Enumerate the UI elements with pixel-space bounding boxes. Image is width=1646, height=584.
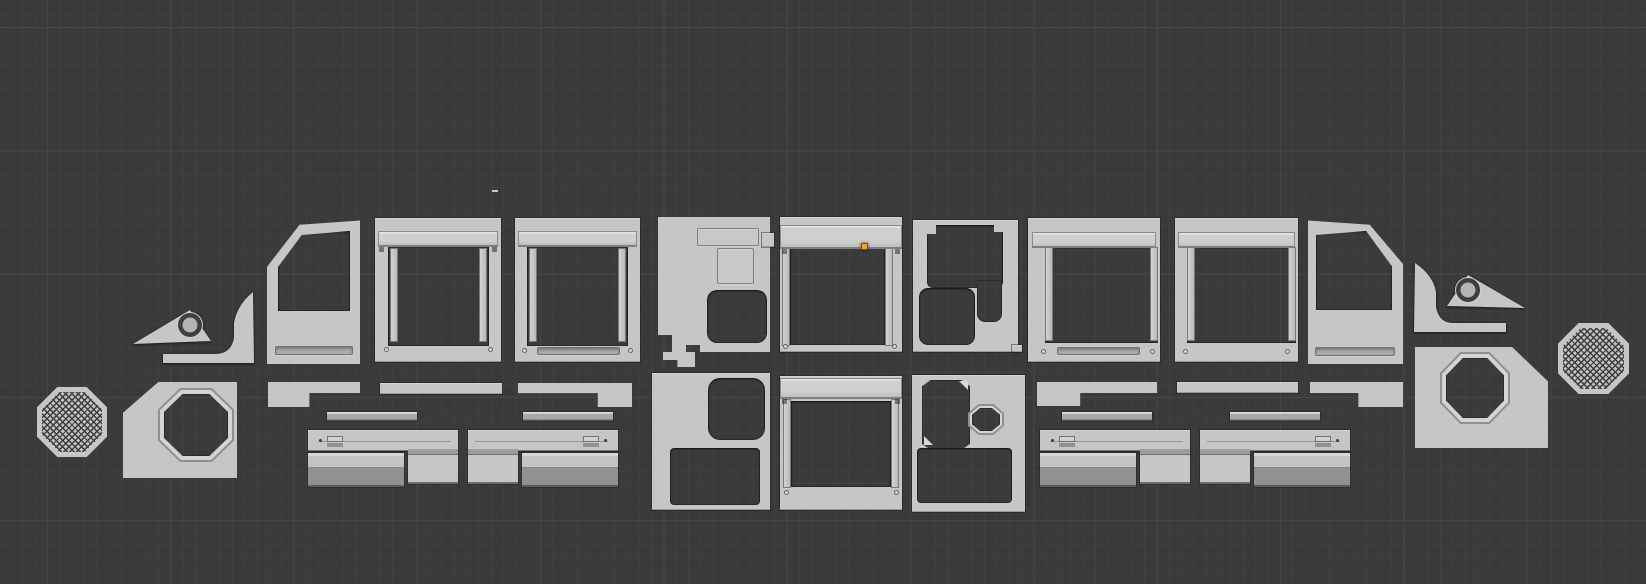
assembly-light-block bbox=[1200, 455, 1250, 484]
window-rail-right bbox=[618, 248, 626, 342]
rocker-strip-right-c[interactable] bbox=[1310, 382, 1403, 407]
latch-detail-upper bbox=[1315, 436, 1331, 442]
bottom-panel-left[interactable] bbox=[652, 373, 770, 510]
rounded-cutout bbox=[708, 378, 765, 440]
window-header-bar bbox=[378, 231, 498, 247]
assembly-dark-block bbox=[1254, 468, 1350, 487]
rocker-strip-right-b[interactable] bbox=[1177, 382, 1298, 393]
latch-detail-lower bbox=[1315, 443, 1331, 447]
window-rail-left bbox=[782, 245, 790, 346]
octagon-hole bbox=[164, 394, 228, 456]
latch-detail-lower bbox=[583, 443, 599, 447]
rail-strip-right-1[interactable] bbox=[1062, 412, 1152, 421]
rect-cutout bbox=[917, 448, 1012, 503]
header-hook-left bbox=[782, 249, 787, 254]
assembly-top-band bbox=[308, 430, 458, 451]
octagon-hole bbox=[1446, 358, 1504, 418]
assembly-pin-dot bbox=[1336, 439, 1339, 442]
assembly-step-band bbox=[1040, 453, 1136, 469]
assembly-step-band bbox=[522, 453, 618, 469]
tall-cutout bbox=[922, 380, 970, 450]
window-rail-right bbox=[1288, 247, 1296, 341]
door-handle-slot bbox=[1315, 347, 1395, 356]
screw-dot bbox=[1041, 349, 1046, 354]
assembly-pin-dot bbox=[1051, 439, 1054, 442]
assembly-step-band bbox=[308, 453, 404, 469]
window-rail-left bbox=[1187, 247, 1195, 341]
window-opening bbox=[388, 246, 489, 346]
screw-dot bbox=[1150, 349, 1155, 354]
assembly-top-band bbox=[1040, 430, 1190, 451]
rocker-strip-left-b[interactable] bbox=[380, 383, 502, 394]
latch-detail-upper bbox=[583, 436, 599, 442]
window-frame-2[interactable] bbox=[515, 218, 640, 362]
assembly-dark-block bbox=[308, 468, 404, 487]
assembly-light-block bbox=[1140, 455, 1190, 484]
mid-panel-right-tab[interactable] bbox=[1012, 345, 1022, 352]
assembly-dark-block bbox=[522, 468, 618, 487]
screw-dot bbox=[522, 348, 527, 353]
window-rail-right bbox=[1150, 247, 1158, 341]
screw-dot bbox=[783, 344, 788, 349]
wing-triangle-right[interactable] bbox=[1443, 271, 1525, 311]
rocker-strip-left-c[interactable] bbox=[518, 383, 632, 407]
assembly-pin-dot bbox=[604, 439, 607, 442]
boss-core bbox=[1461, 283, 1476, 298]
screw-dot bbox=[892, 344, 897, 349]
header-hook-right bbox=[895, 399, 900, 404]
rounded-cutout bbox=[707, 290, 767, 343]
header-hook-right bbox=[895, 249, 900, 254]
cutout-corner-notch bbox=[927, 225, 936, 234]
header-hook-right bbox=[492, 247, 497, 252]
mesh-octagon-right[interactable] bbox=[1558, 323, 1629, 394]
latch-detail-lower bbox=[1059, 443, 1075, 447]
door-window-cutout bbox=[1316, 231, 1392, 310]
window-frame-1[interactable] bbox=[375, 218, 501, 362]
mid-panel-left-tab-bottom[interactable] bbox=[663, 352, 695, 367]
rocker-strip-left-a[interactable] bbox=[268, 382, 360, 407]
wing-hook-shape bbox=[163, 292, 254, 363]
wing-hook-left[interactable] bbox=[163, 291, 255, 364]
screw-dot bbox=[1285, 349, 1290, 354]
header-hook-left bbox=[379, 247, 384, 252]
bottom-panel-right[interactable] bbox=[912, 375, 1025, 512]
window-header-bar bbox=[1032, 232, 1156, 248]
screw-dot bbox=[894, 490, 899, 495]
assembly-pin-dot bbox=[319, 439, 322, 442]
window-opening bbox=[1187, 247, 1296, 343]
cutout-corner-notch bbox=[994, 225, 1003, 232]
window-rail-left bbox=[390, 248, 398, 342]
step-assembly-left-2[interactable] bbox=[468, 430, 618, 487]
screw-dot bbox=[784, 490, 789, 495]
center-window-frame-bottom[interactable] bbox=[780, 376, 902, 510]
window-frame-3[interactable] bbox=[1028, 218, 1160, 362]
window-opening bbox=[790, 247, 885, 345]
vent-rect-wide bbox=[697, 228, 759, 246]
window-sill-bar bbox=[537, 347, 620, 355]
center-window-frame-top[interactable] bbox=[780, 217, 902, 352]
rounded-cutout-bottom bbox=[919, 288, 975, 345]
octagon-hole bbox=[972, 408, 1000, 431]
screw-dot bbox=[628, 348, 633, 353]
assembly-light-block bbox=[468, 455, 518, 484]
octagon-ring-outer bbox=[968, 404, 1004, 435]
door-handle-slot bbox=[275, 346, 353, 355]
window-rail-right bbox=[885, 245, 893, 346]
mesh-pattern bbox=[1563, 328, 1624, 389]
rail-strip-left-2[interactable] bbox=[523, 412, 613, 421]
vent-rect-square bbox=[717, 248, 754, 284]
latch-detail-lower bbox=[327, 443, 343, 447]
octagon-hole-panel-right[interactable] bbox=[1415, 347, 1548, 448]
rect-cutout bbox=[670, 448, 760, 505]
mid-panel-right[interactable] bbox=[913, 220, 1018, 352]
assembly-top-band bbox=[1200, 430, 1350, 451]
window-sill-bar bbox=[1057, 347, 1140, 355]
screw-dot bbox=[384, 347, 389, 352]
screw-dot bbox=[488, 347, 493, 352]
step-assembly-right-1[interactable] bbox=[1040, 430, 1190, 487]
window-rail-right bbox=[479, 248, 487, 342]
notched-cutout-top bbox=[927, 225, 1003, 288]
door-panel-right[interactable] bbox=[1308, 219, 1403, 364]
latch-detail-upper bbox=[1059, 436, 1075, 442]
assembly-step-band bbox=[1254, 453, 1350, 469]
mesh-pattern bbox=[42, 392, 102, 452]
window-rail-right bbox=[891, 399, 899, 488]
assembly-top-band bbox=[468, 430, 618, 451]
mesh-octagon-left[interactable] bbox=[37, 387, 107, 457]
cutout-right-arm bbox=[977, 280, 1002, 322]
door-window-cutout bbox=[278, 231, 350, 311]
rocker-strip-right-a[interactable] bbox=[1037, 382, 1157, 406]
latch-detail-upper bbox=[327, 436, 343, 442]
window-rail-left bbox=[529, 248, 537, 342]
3d-viewport[interactable] bbox=[0, 0, 1646, 584]
octagon-ring-outer bbox=[1440, 352, 1510, 424]
object-origin-dot bbox=[861, 243, 868, 250]
rail-strip-right-2[interactable] bbox=[1230, 412, 1320, 421]
window-opening bbox=[1045, 247, 1158, 343]
step-assembly-right-2[interactable] bbox=[1200, 430, 1350, 487]
window-header-bar bbox=[780, 225, 902, 249]
window-rail-left bbox=[1045, 247, 1053, 341]
octagon-hole-panel-left[interactable] bbox=[123, 382, 237, 478]
window-header-bar bbox=[780, 378, 902, 399]
mid-panel-left[interactable] bbox=[658, 217, 770, 352]
header-hook-left bbox=[782, 399, 787, 404]
window-header-bar bbox=[518, 231, 637, 247]
door-panel-left[interactable] bbox=[267, 219, 360, 364]
window-frame-4[interactable] bbox=[1175, 218, 1298, 362]
stray-vertex-dash bbox=[492, 190, 498, 192]
window-header-bar bbox=[1178, 232, 1295, 248]
window-opening bbox=[527, 246, 628, 346]
assembly-light-block bbox=[408, 455, 458, 484]
assembly-dark-block bbox=[1040, 468, 1136, 487]
octagon-ring-outer bbox=[158, 388, 234, 462]
rail-strip-left-1[interactable] bbox=[327, 412, 417, 421]
mid-panel-left-tab-right[interactable] bbox=[762, 233, 774, 247]
window-opening bbox=[791, 401, 891, 487]
window-rail-left bbox=[783, 399, 791, 488]
screw-dot bbox=[1183, 349, 1188, 354]
step-assembly-left-1[interactable] bbox=[308, 430, 458, 487]
